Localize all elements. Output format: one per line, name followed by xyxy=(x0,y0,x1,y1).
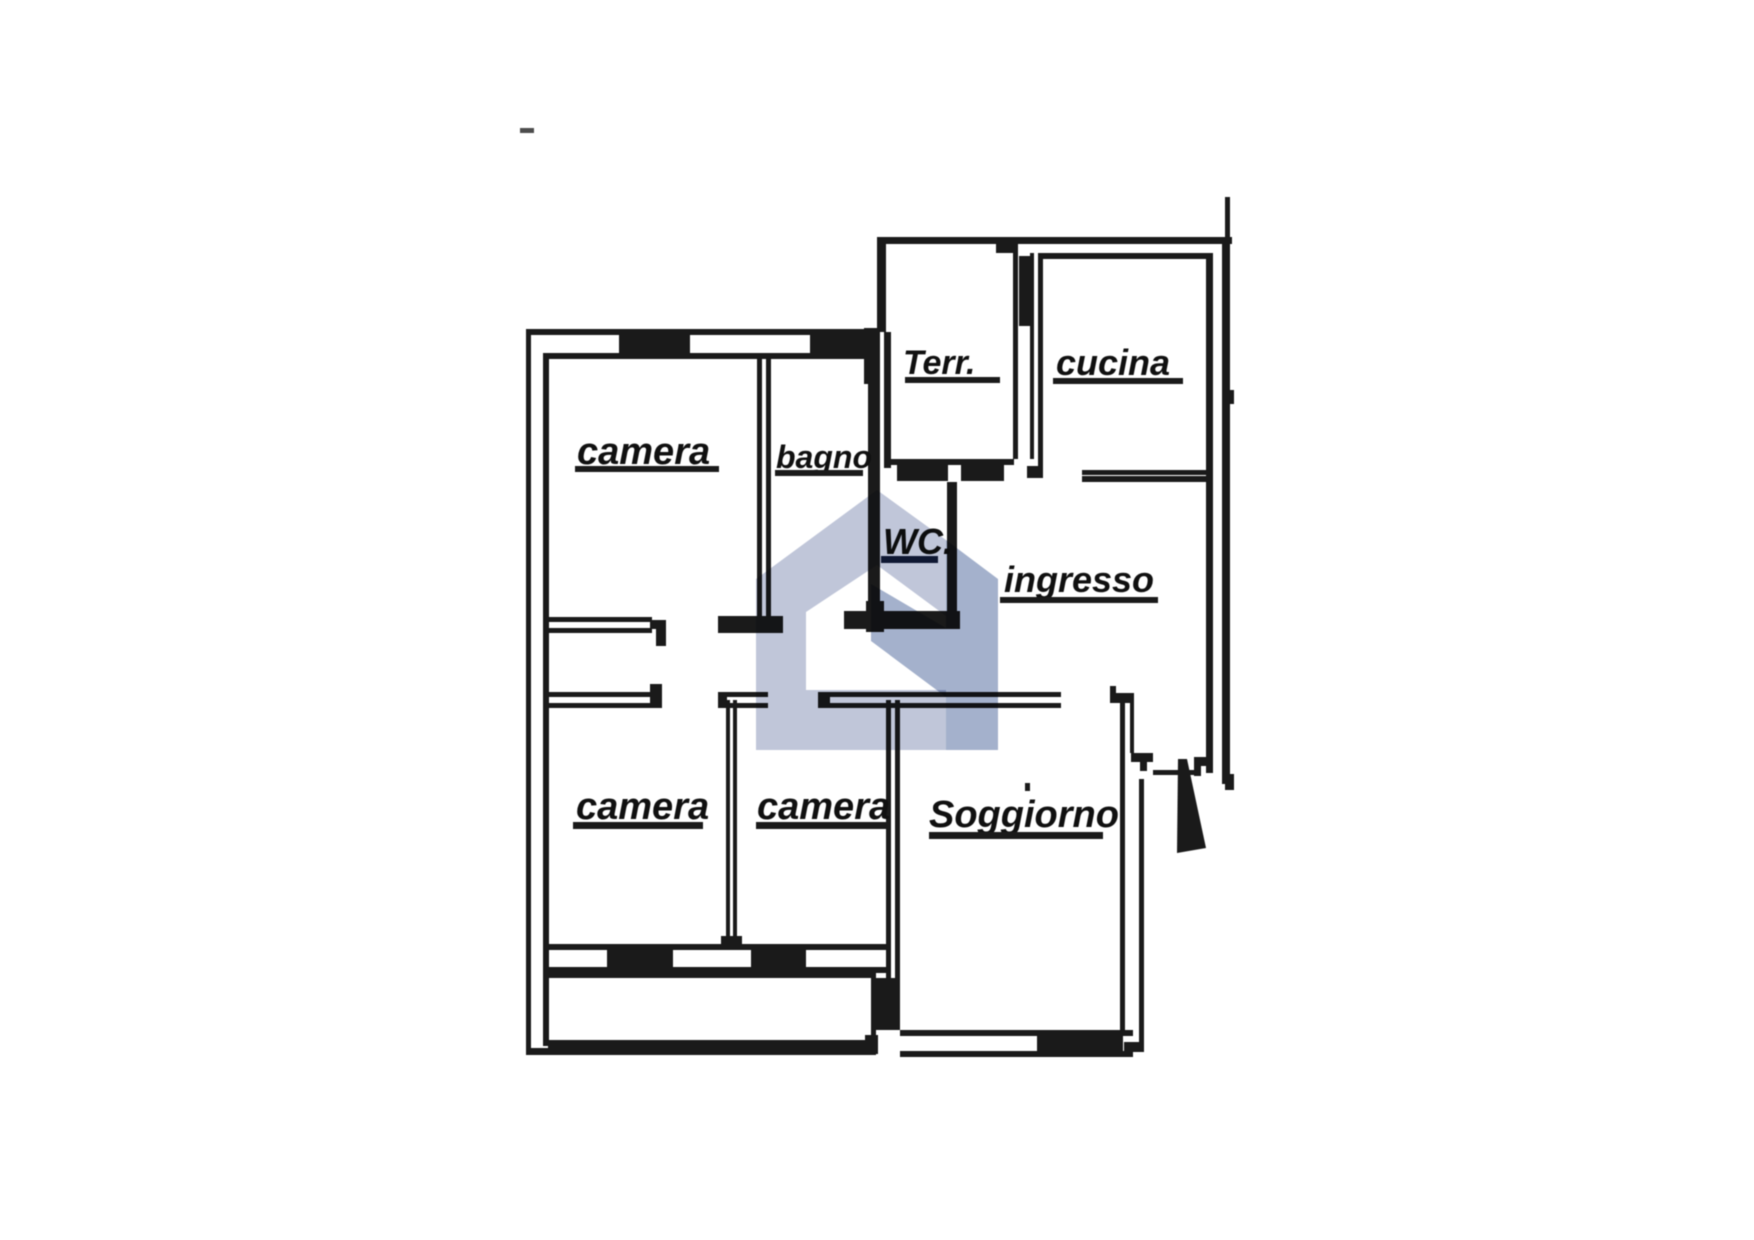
svg-text:bagno: bagno xyxy=(776,439,872,475)
svg-text:camera: camera xyxy=(757,786,890,828)
svg-text:ingresso: ingresso xyxy=(1004,559,1154,600)
svg-text:cucina: cucina xyxy=(1056,342,1170,383)
svg-text:Terr.: Terr. xyxy=(903,344,975,382)
svg-text:camera: camera xyxy=(576,786,709,828)
svg-text:Soggiorno: Soggiorno xyxy=(929,794,1119,836)
